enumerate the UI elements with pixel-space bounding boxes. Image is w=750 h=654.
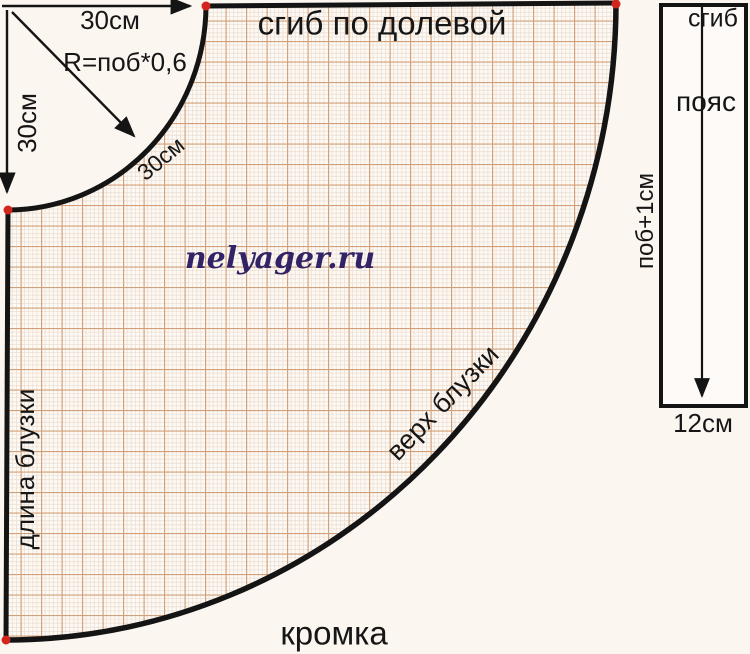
pattern-point <box>202 2 211 11</box>
radius-formula-label: R=поб*0,6 <box>63 49 187 75</box>
watermark-text: nelyager.ru <box>185 244 375 274</box>
pattern-point <box>4 206 13 215</box>
waistband-label: пояс <box>676 88 736 116</box>
waistband-width-formula-label: поб+1см <box>634 173 658 269</box>
pattern-drawing <box>0 0 750 654</box>
pattern-point <box>2 636 11 645</box>
waistband-fold-label: сгиб <box>688 7 738 32</box>
left-height-label: 30см <box>14 93 40 153</box>
waistband-rectangle <box>661 5 746 406</box>
waistband-height-label: 12см <box>673 410 733 436</box>
sewing-pattern-diagram: 30см R=поб*0,6 30см 30см сгиб по долевой… <box>0 0 750 654</box>
fold-grainline-label: сгиб по долевой <box>258 7 507 40</box>
top-width-label: 30см <box>80 7 140 33</box>
selvage-label: кромка <box>280 617 387 650</box>
side-edge <box>6 209 8 640</box>
blouse-length-label: длина блузки <box>12 389 38 550</box>
